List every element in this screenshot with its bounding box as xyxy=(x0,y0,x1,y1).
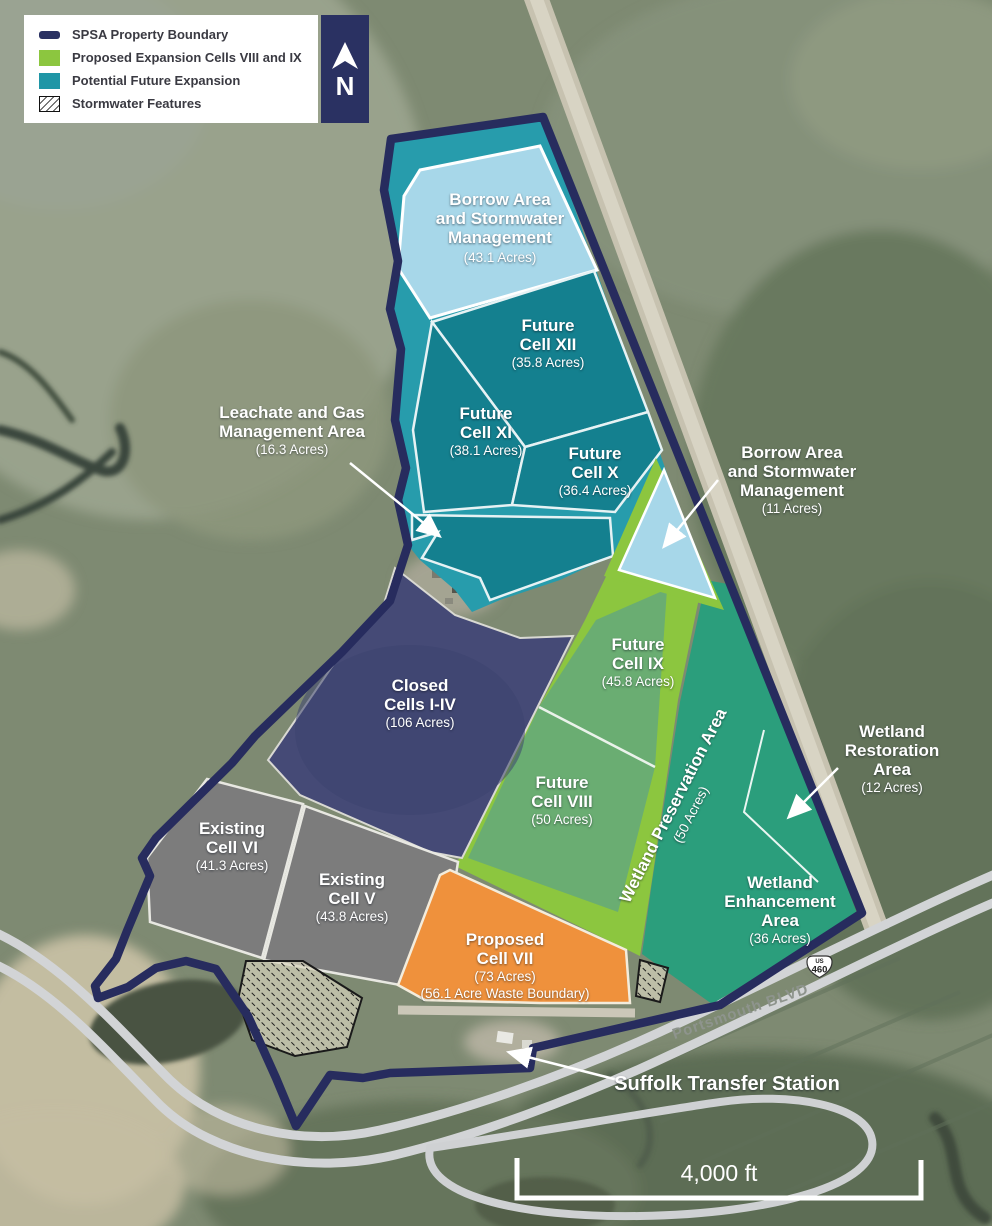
svg-text:Wetland: Wetland xyxy=(859,722,925,741)
legend-panel: SPSA Property Boundary Proposed Expansio… xyxy=(24,15,318,123)
legend-item-label: Potential Future Expansion xyxy=(72,73,240,88)
svg-text:Management: Management xyxy=(740,481,844,500)
svg-text:Future: Future xyxy=(460,404,513,423)
legend-item-label: Stormwater Features xyxy=(72,96,201,111)
svg-text:Cell IX: Cell IX xyxy=(612,654,665,673)
potential-expansion-swatch xyxy=(39,73,60,89)
svg-text:Cell VI: Cell VI xyxy=(206,838,258,857)
label-future-cell-xi: Future Cell XI (38.1 Acres) xyxy=(450,404,523,458)
svg-text:Borrow Area: Borrow Area xyxy=(449,190,551,209)
boundary-line-swatch xyxy=(39,31,60,39)
svg-text:Cell VIII: Cell VIII xyxy=(531,792,592,811)
svg-text:(36.4 Acres): (36.4 Acres) xyxy=(559,483,632,498)
svg-text:(41.3 Acres): (41.3 Acres) xyxy=(196,858,269,873)
svg-text:(73 Acres): (73 Acres) xyxy=(474,969,536,984)
svg-text:and Stormwater: and Stormwater xyxy=(728,462,857,481)
svg-text:(106 Acres): (106 Acres) xyxy=(385,715,454,730)
label-closed-cells: Closed Cells I-IV (106 Acres) xyxy=(384,676,456,730)
north-label: N xyxy=(336,73,355,99)
legend-item-property-boundary: SPSA Property Boundary xyxy=(24,23,318,46)
legend-item-proposed-expansion: Proposed Expansion Cells VIII and IX xyxy=(24,46,318,69)
scale-label: 4,000 ft xyxy=(681,1160,758,1186)
legend-item-label: SPSA Property Boundary xyxy=(72,27,228,42)
svg-text:(36 Acres): (36 Acres) xyxy=(749,931,811,946)
svg-text:(45.8 Acres): (45.8 Acres) xyxy=(602,674,675,689)
label-future-cell-ix: Future Cell IX (45.8 Acres) xyxy=(602,635,675,689)
svg-text:Wetland: Wetland xyxy=(747,873,813,892)
label-existing-cell-vi: Existing Cell VI (41.3 Acres) xyxy=(196,819,269,873)
svg-text:Cell V: Cell V xyxy=(328,889,376,908)
svg-text:Future: Future xyxy=(536,773,589,792)
svg-text:Closed: Closed xyxy=(392,676,449,695)
svg-text:Existing: Existing xyxy=(199,819,265,838)
svg-text:Area: Area xyxy=(873,760,911,779)
svg-text:Management: Management xyxy=(448,228,552,247)
svg-text:Future: Future xyxy=(569,444,622,463)
svg-text:Cell XII: Cell XII xyxy=(520,335,577,354)
svg-text:Area: Area xyxy=(761,911,799,930)
svg-text:460: 460 xyxy=(812,965,828,976)
svg-text:Future: Future xyxy=(612,635,665,654)
satellite-map: Borrow Area and Stormwater Management (4… xyxy=(0,0,992,1226)
svg-text:(56.1 Acre Waste Boundary): (56.1 Acre Waste Boundary) xyxy=(420,986,589,1001)
label-future-cell-viii: Future Cell VIII (50 Acres) xyxy=(531,773,593,827)
svg-text:(43.1 Acres): (43.1 Acres) xyxy=(464,250,537,265)
svg-text:Restoration: Restoration xyxy=(845,741,939,760)
svg-text:Cells I-IV: Cells I-IV xyxy=(384,695,456,714)
legend-item-stormwater: Stormwater Features xyxy=(24,92,318,115)
svg-text:(16.3 Acres): (16.3 Acres) xyxy=(256,442,329,457)
svg-text:Cell X: Cell X xyxy=(571,463,619,482)
svg-text:Future: Future xyxy=(522,316,575,335)
legend-item-potential-expansion: Potential Future Expansion xyxy=(24,69,318,92)
svg-text:(12 Acres): (12 Acres) xyxy=(861,780,923,795)
svg-text:(43.8 Acres): (43.8 Acres) xyxy=(316,909,389,924)
stormwater-hatch-swatch xyxy=(39,96,60,112)
svg-text:(50 Acres): (50 Acres) xyxy=(531,812,593,827)
svg-text:(38.1 Acres): (38.1 Acres) xyxy=(450,443,523,458)
label-future-cell-xii: Future Cell XII (35.8 Acres) xyxy=(512,316,585,370)
legend-item-label: Proposed Expansion Cells VIII and IX xyxy=(72,50,302,65)
svg-text:and Stormwater: and Stormwater xyxy=(436,209,565,228)
proposed-expansion-swatch xyxy=(39,50,60,66)
map-figure: Borrow Area and Stormwater Management (4… xyxy=(0,0,992,1226)
svg-text:Proposed: Proposed xyxy=(466,930,544,949)
north-arrow-icon xyxy=(325,40,365,72)
svg-text:(11 Acres): (11 Acres) xyxy=(762,501,823,516)
svg-text:(35.8 Acres): (35.8 Acres) xyxy=(512,355,585,370)
svg-text:Leachate and Gas: Leachate and Gas xyxy=(219,403,365,422)
svg-text:Borrow Area: Borrow Area xyxy=(741,443,843,462)
label-transfer-station: Suffolk Transfer Station xyxy=(614,1073,840,1095)
svg-text:Cell XI: Cell XI xyxy=(460,423,512,442)
svg-text:Cell VII: Cell VII xyxy=(477,949,534,968)
svg-text:Management Area: Management Area xyxy=(219,422,365,441)
svg-text:Enhancement: Enhancement xyxy=(724,892,836,911)
north-arrow-box: N xyxy=(321,15,369,123)
access-road xyxy=(398,1010,635,1013)
closed-cells-texture xyxy=(295,645,525,815)
svg-text:Existing: Existing xyxy=(319,870,385,889)
